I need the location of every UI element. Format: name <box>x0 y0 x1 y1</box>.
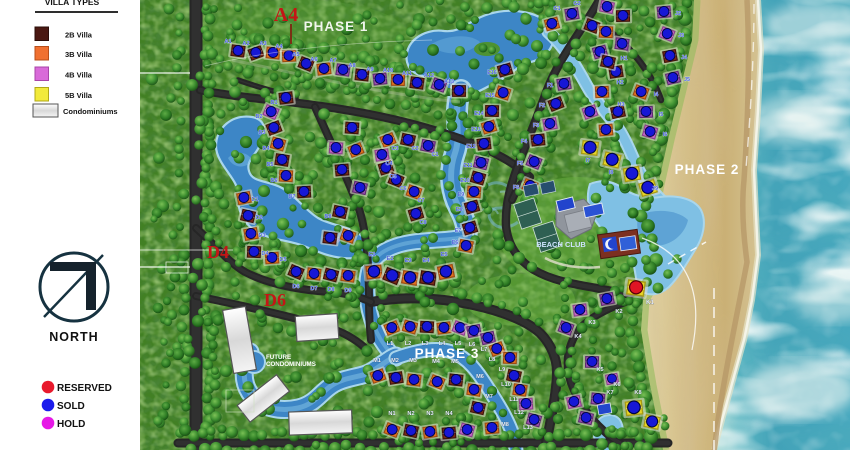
svg-text:PHASE 3: PHASE 3 <box>415 346 480 361</box>
svg-text:B8: B8 <box>325 214 332 220</box>
svg-text:H1: H1 <box>621 56 628 62</box>
svg-text:L13: L13 <box>523 425 533 431</box>
svg-text:I7: I7 <box>586 158 591 164</box>
svg-text:K2: K2 <box>615 309 622 315</box>
svg-text:E9: E9 <box>458 192 465 198</box>
svg-text:E3: E3 <box>404 258 412 264</box>
svg-text:VILLA TYPES: VILLA TYPES <box>45 0 100 7</box>
svg-text:C6: C6 <box>400 186 407 192</box>
svg-text:B6: B6 <box>271 178 278 184</box>
svg-text:A4: A4 <box>275 44 283 50</box>
svg-text:E10: E10 <box>460 178 470 184</box>
svg-text:A10: A10 <box>383 68 393 74</box>
svg-text:N4: N4 <box>445 411 453 417</box>
svg-text:F6: F6 <box>513 185 519 191</box>
svg-text:B3: B3 <box>259 130 266 136</box>
svg-text:C8: C8 <box>420 220 427 226</box>
svg-text:D4: D4 <box>207 242 229 262</box>
svg-text:E5: E5 <box>440 252 448 258</box>
svg-text:N3: N3 <box>426 411 433 417</box>
svg-text:J4: J4 <box>681 55 687 61</box>
svg-text:J5: J5 <box>684 77 690 83</box>
svg-text:A6: A6 <box>310 57 317 63</box>
svg-text:D6: D6 <box>293 284 300 290</box>
svg-text:D8: D8 <box>328 287 335 293</box>
svg-text:Condominiums: Condominiums <box>63 107 118 116</box>
svg-text:L11: L11 <box>509 397 518 403</box>
svg-text:A1: A1 <box>224 39 231 45</box>
svg-text:PHASE 2: PHASE 2 <box>675 162 740 177</box>
svg-text:I6: I6 <box>663 132 668 138</box>
svg-text:A2: A2 <box>242 41 249 47</box>
svg-text:E13: E13 <box>471 127 481 133</box>
svg-text:K1: K1 <box>646 299 654 306</box>
svg-text:D4: D4 <box>262 251 269 257</box>
svg-text:G1: G1 <box>553 6 560 12</box>
svg-text:G2: G2 <box>573 1 580 7</box>
svg-text:C7: C7 <box>418 198 425 204</box>
svg-text:H3: H3 <box>618 102 625 108</box>
svg-text:K7: K7 <box>606 390 613 396</box>
svg-text:L1: L1 <box>387 341 394 347</box>
svg-text:K4: K4 <box>574 334 582 340</box>
svg-text:D5: D5 <box>280 257 287 263</box>
svg-text:N1: N1 <box>388 411 395 417</box>
svg-text:A4: A4 <box>274 4 298 26</box>
svg-text:M8: M8 <box>501 422 509 428</box>
svg-text:K8: K8 <box>634 390 641 396</box>
svg-text:CONDOMINIUMS: CONDOMINIUMS <box>266 361 316 368</box>
svg-text:RESERVED: RESERVED <box>57 383 112 394</box>
svg-text:N2: N2 <box>407 411 414 417</box>
svg-text:A11: A11 <box>402 71 412 77</box>
svg-text:C1: C1 <box>432 152 439 158</box>
svg-text:E16: E16 <box>487 70 497 76</box>
svg-text:A8: A8 <box>348 63 355 69</box>
svg-text:M1: M1 <box>373 358 381 364</box>
svg-text:A9: A9 <box>366 67 373 73</box>
svg-text:4B Villa: 4B Villa <box>65 71 93 80</box>
svg-text:M7: M7 <box>485 394 493 400</box>
svg-text:D2: D2 <box>256 215 263 221</box>
svg-text:NORTH: NORTH <box>49 330 98 344</box>
svg-text:B5: B5 <box>267 162 274 168</box>
svg-text:C4: C4 <box>386 161 393 167</box>
svg-text:M6: M6 <box>476 374 484 380</box>
svg-text:E12: E12 <box>466 144 476 150</box>
svg-text:C3: C3 <box>392 146 399 152</box>
svg-text:L10: L10 <box>501 382 511 388</box>
svg-text:E4: E4 <box>422 258 430 264</box>
svg-text:F3: F3 <box>533 123 539 129</box>
svg-text:L2: L2 <box>405 341 412 347</box>
svg-text:A12: A12 <box>424 73 434 79</box>
svg-text:3B Villa: 3B Villa <box>65 50 93 59</box>
svg-text:B4: B4 <box>263 146 270 152</box>
svg-text:PHASE 1: PHASE 1 <box>304 19 369 34</box>
svg-text:L7: L7 <box>481 347 488 353</box>
svg-text:A7: A7 <box>329 58 336 64</box>
svg-text:L12: L12 <box>514 410 524 416</box>
svg-text:C5: C5 <box>390 174 397 180</box>
svg-text:HOLD: HOLD <box>57 419 85 430</box>
svg-text:A13: A13 <box>444 79 454 85</box>
svg-text:L8: L8 <box>489 357 496 363</box>
svg-text:D9: D9 <box>345 288 352 294</box>
svg-text:B2: B2 <box>256 114 263 120</box>
svg-text:A5: A5 <box>292 52 299 58</box>
svg-text:D6: D6 <box>264 290 286 310</box>
svg-text:B7: B7 <box>289 194 296 200</box>
svg-text:K5: K5 <box>596 367 603 373</box>
svg-text:F2: F2 <box>539 103 545 109</box>
svg-text:J2: J2 <box>675 11 681 17</box>
svg-text:J3: J3 <box>678 33 684 39</box>
svg-text:F5: F5 <box>517 161 523 167</box>
svg-text:K3: K3 <box>588 320 595 326</box>
svg-text:K6: K6 <box>613 382 620 388</box>
svg-text:5B Villa: 5B Villa <box>65 91 93 100</box>
svg-text:FUTURE: FUTURE <box>266 354 291 361</box>
svg-text:E8: E8 <box>456 207 463 213</box>
svg-text:E1: E1 <box>368 252 376 258</box>
svg-text:F1: F1 <box>547 83 553 89</box>
svg-text:E15: E15 <box>485 93 495 99</box>
svg-text:2B Villa: 2B Villa <box>65 31 93 40</box>
svg-text:SOLD: SOLD <box>57 401 85 412</box>
svg-text:D3: D3 <box>259 233 266 239</box>
svg-text:E6: E6 <box>452 240 459 246</box>
svg-text:E11: E11 <box>463 163 472 169</box>
svg-text:L9: L9 <box>499 367 506 373</box>
svg-text:M2: M2 <box>391 358 399 364</box>
svg-text:A3: A3 <box>259 41 266 47</box>
svg-text:E14: E14 <box>474 111 484 117</box>
svg-text:E7: E7 <box>455 228 462 234</box>
svg-text:BEACH CLUB: BEACH CLUB <box>536 240 586 249</box>
svg-text:F4: F4 <box>521 139 527 145</box>
svg-text:J9: J9 <box>652 186 658 192</box>
svg-text:D7: D7 <box>311 286 318 292</box>
svg-text:I8: I8 <box>609 170 614 176</box>
svg-text:C2: C2 <box>412 146 419 152</box>
svg-text:E2: E2 <box>386 256 393 262</box>
svg-text:H2: H2 <box>617 80 624 86</box>
svg-text:I4: I4 <box>654 92 659 98</box>
svg-text:I5: I5 <box>659 112 664 118</box>
svg-text:B1: B1 <box>271 100 278 106</box>
svg-text:D1: D1 <box>252 197 259 203</box>
